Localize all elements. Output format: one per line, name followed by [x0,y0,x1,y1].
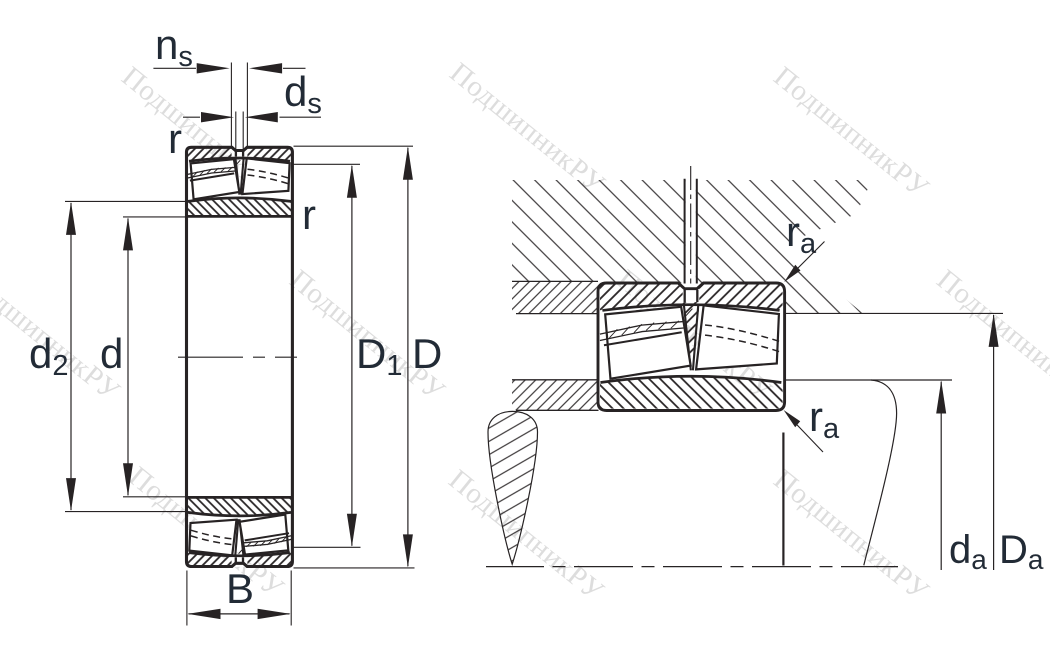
svg-text:D: D [412,330,442,377]
svg-text:r: r [168,115,182,162]
svg-text:B: B [226,565,254,612]
svg-text:d: d [100,330,123,377]
svg-text:r: r [302,191,316,238]
